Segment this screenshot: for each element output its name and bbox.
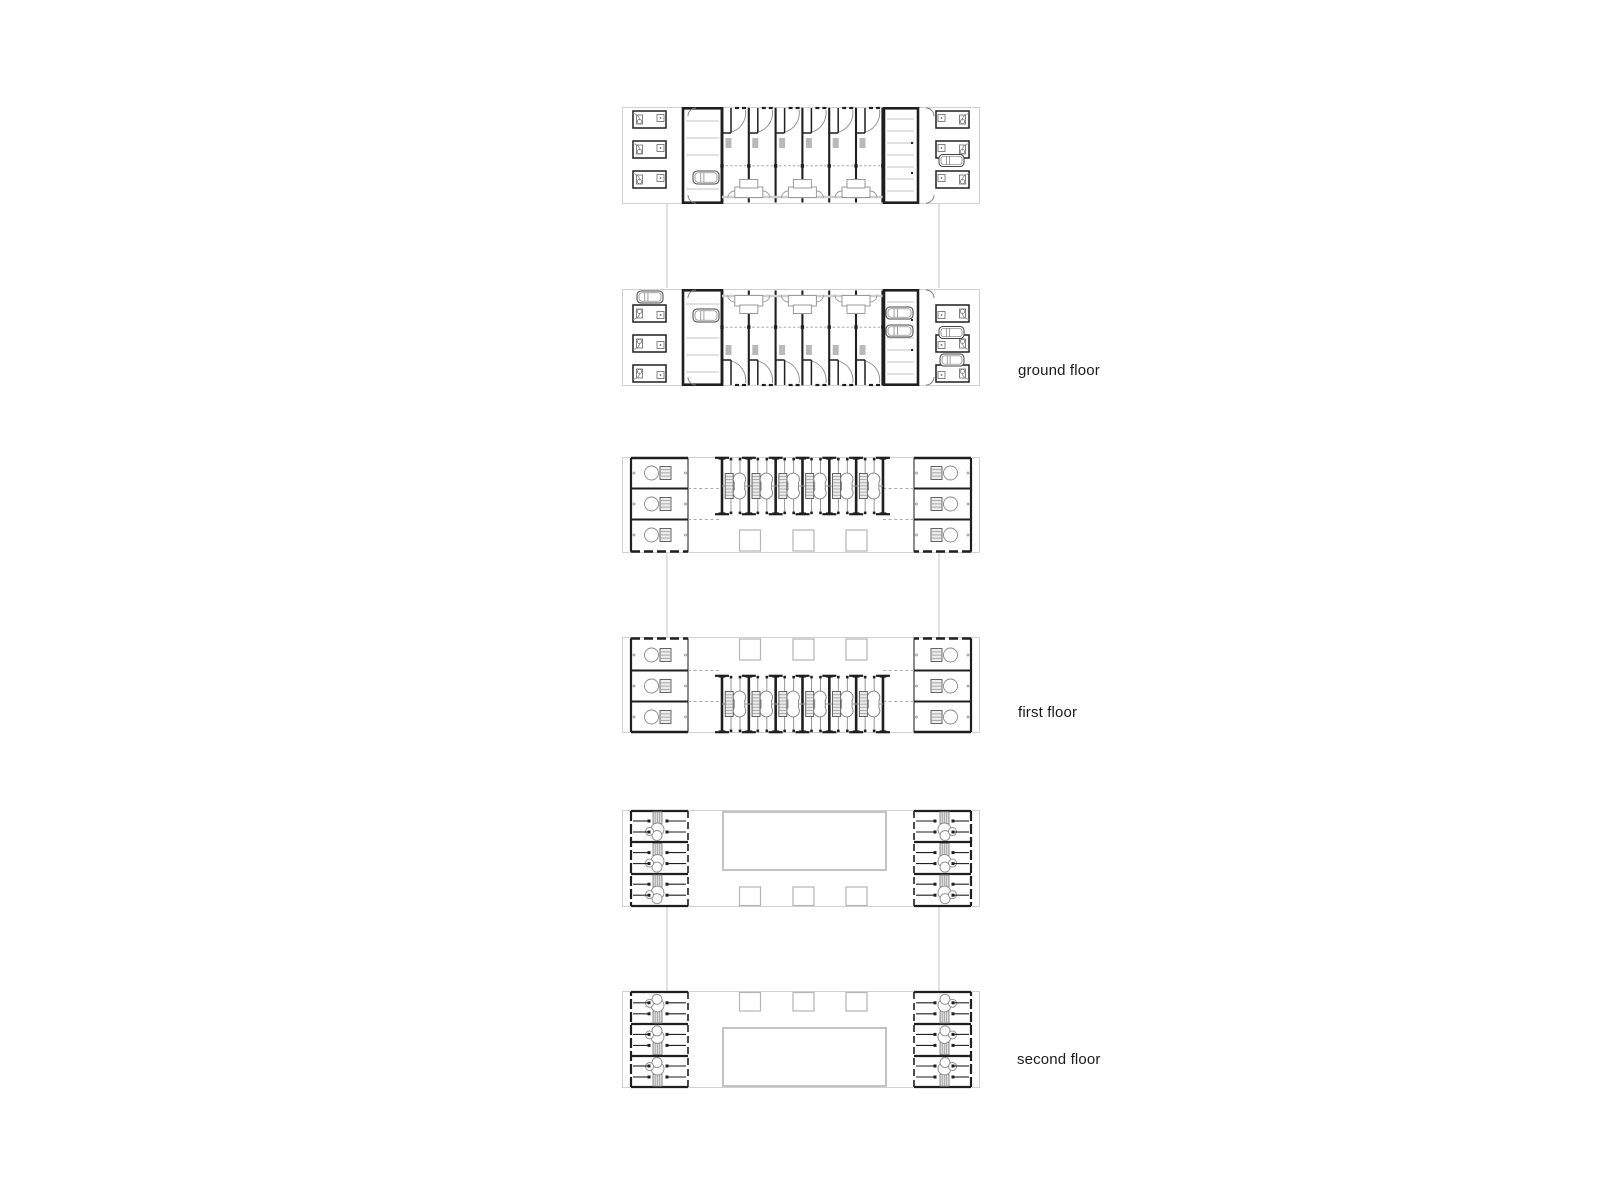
ground-floor-bar [623,290,980,386]
second-floor-plan [623,811,980,1088]
first-floor-bar [623,638,980,734]
first-floor-bar [623,457,980,553]
label-second-floor: second floor [1017,1052,1101,1068]
ground-floor-plan [623,108,980,386]
floor-plans-sheet: ground floor first floor second floor [0,0,1600,1202]
ground-floor-bar [623,108,980,204]
first-floor-plan [623,457,980,733]
floor-plan-drawing [0,0,1600,1202]
label-ground-floor: ground floor [1018,363,1100,379]
second-floor-bar [623,992,980,1088]
second-floor-bar [623,811,980,907]
label-first-floor: first floor [1018,705,1077,721]
